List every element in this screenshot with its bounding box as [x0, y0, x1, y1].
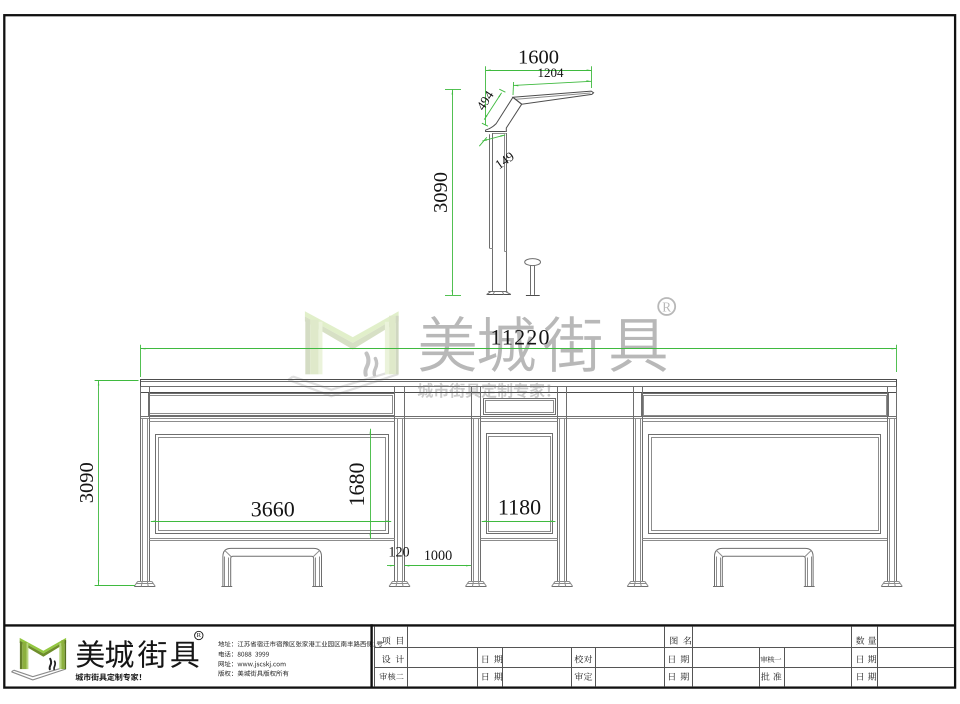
svg-text:494: 494 — [473, 88, 497, 113]
svg-text:1204: 1204 — [538, 65, 565, 80]
svg-text:120: 120 — [388, 545, 409, 561]
svg-text:3660: 3660 — [251, 496, 295, 521]
svg-text:11220: 11220 — [491, 324, 551, 349]
svg-text:3090: 3090 — [76, 462, 98, 503]
svg-text:149: 149 — [492, 148, 517, 172]
svg-text:1000: 1000 — [424, 548, 452, 564]
svg-text:1180: 1180 — [498, 495, 541, 520]
svg-text:3090: 3090 — [430, 172, 452, 213]
svg-text:1680: 1680 — [344, 463, 369, 507]
